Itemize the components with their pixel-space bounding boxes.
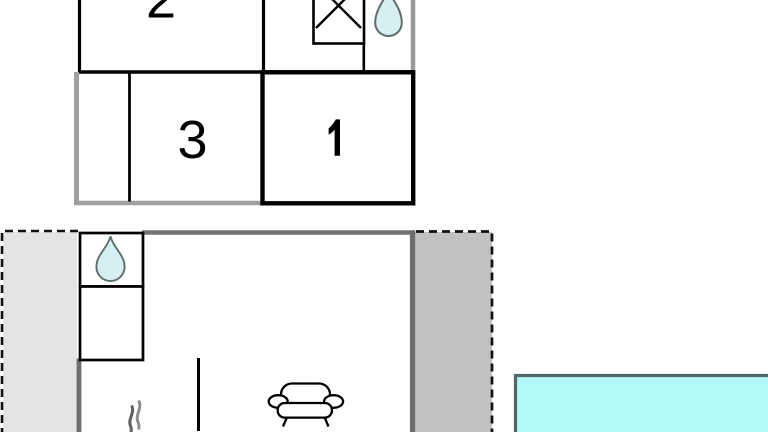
svg-text:2: 2 [146, 0, 176, 30]
svg-text:3: 3 [177, 110, 207, 170]
